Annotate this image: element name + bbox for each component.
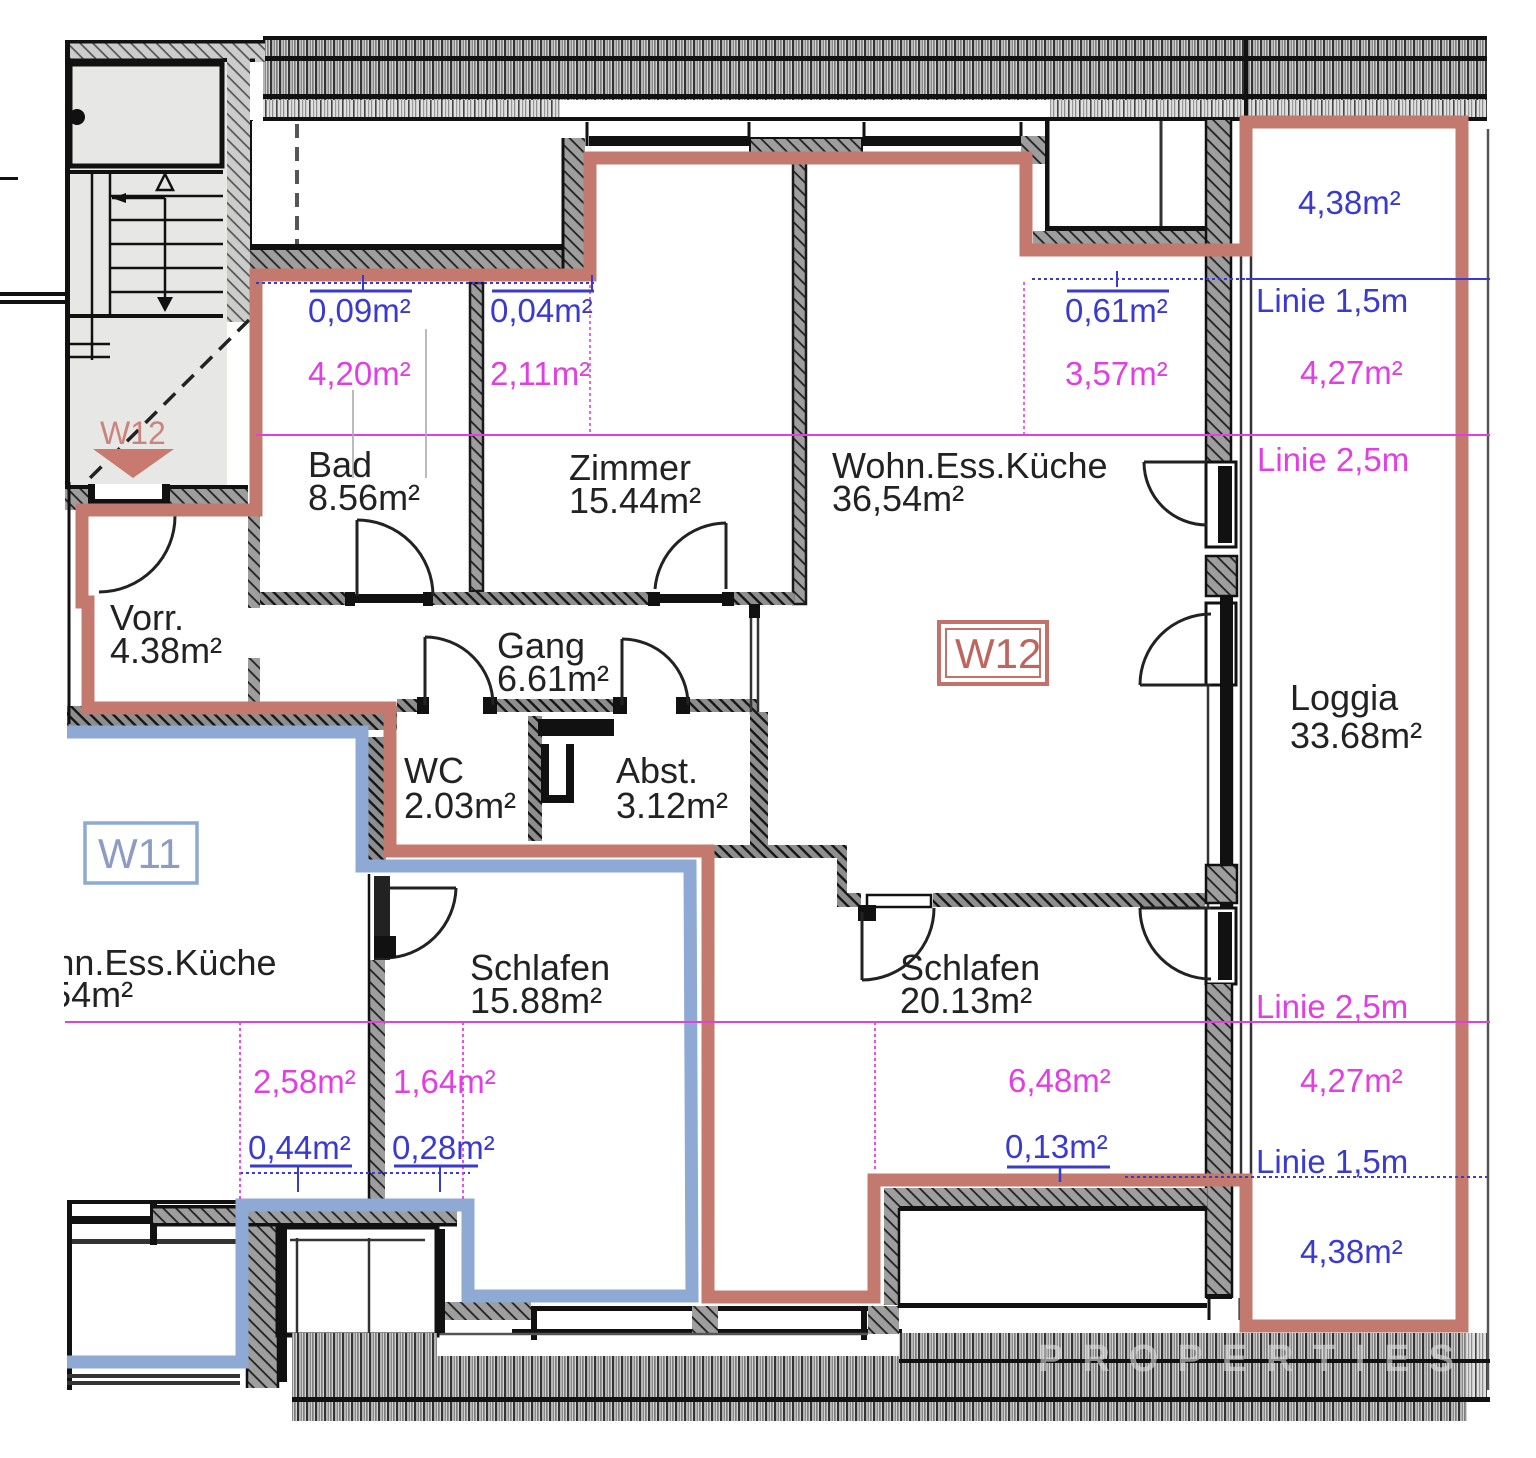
svg-text:2,11m²: 2,11m²	[490, 355, 590, 392]
svg-text:36,54m²: 36,54m²	[832, 478, 964, 519]
svg-text:8.56m²: 8.56m²	[308, 477, 420, 518]
svg-text:3,57m²: 3,57m²	[1065, 355, 1168, 392]
svg-text:4,27m²: 4,27m²	[1300, 354, 1403, 391]
svg-text:0,28m²: 0,28m²	[392, 1129, 495, 1166]
svg-text:2.03m²: 2.03m²	[404, 785, 516, 826]
svg-text:0,04m²: 0,04m²	[490, 292, 593, 329]
svg-text:20.13m²: 20.13m²	[900, 980, 1032, 1021]
svg-text:1,64m²: 1,64m²	[393, 1063, 496, 1100]
svg-text:4,20m²: 4,20m²	[308, 355, 411, 392]
svg-text:4.38m²: 4.38m²	[110, 630, 222, 671]
svg-text:0,44m²: 0,44m²	[248, 1129, 351, 1166]
svg-text:4,38m²: 4,38m²	[1300, 1233, 1403, 1270]
svg-text:0,61m²: 0,61m²	[1065, 292, 1168, 329]
svg-text:W12: W12	[955, 630, 1041, 677]
svg-text:2,58m²: 2,58m²	[253, 1063, 356, 1100]
svg-text:W11: W11	[98, 830, 181, 877]
svg-text:PROPERTIES: PROPERTIES	[1038, 1338, 1473, 1380]
svg-text:15.44m²: 15.44m²	[569, 480, 701, 521]
svg-text:Linie 2,5m: Linie 2,5m	[1256, 988, 1408, 1025]
svg-text:0,13m²: 0,13m²	[1005, 1128, 1108, 1165]
svg-text:Loggia: Loggia	[1290, 677, 1399, 718]
svg-text:4,27m²: 4,27m²	[1300, 1062, 1403, 1099]
svg-text:4,38m²: 4,38m²	[1298, 184, 1401, 221]
svg-text:Linie 1,5m: Linie 1,5m	[1256, 1143, 1408, 1180]
svg-text:15.88m²: 15.88m²	[470, 980, 602, 1021]
svg-text:6.61m²: 6.61m²	[497, 658, 609, 699]
svg-text:0,09m²: 0,09m²	[308, 292, 411, 329]
svg-text:Linie 2,5m: Linie 2,5m	[1257, 441, 1409, 478]
svg-text:Linie 1,5m: Linie 1,5m	[1256, 282, 1408, 319]
svg-text:3.12m²: 3.12m²	[616, 785, 728, 826]
svg-text:6,48m²: 6,48m²	[1008, 1062, 1111, 1099]
svg-text:W12: W12	[100, 415, 166, 451]
svg-text:33.68m²: 33.68m²	[1290, 715, 1422, 756]
